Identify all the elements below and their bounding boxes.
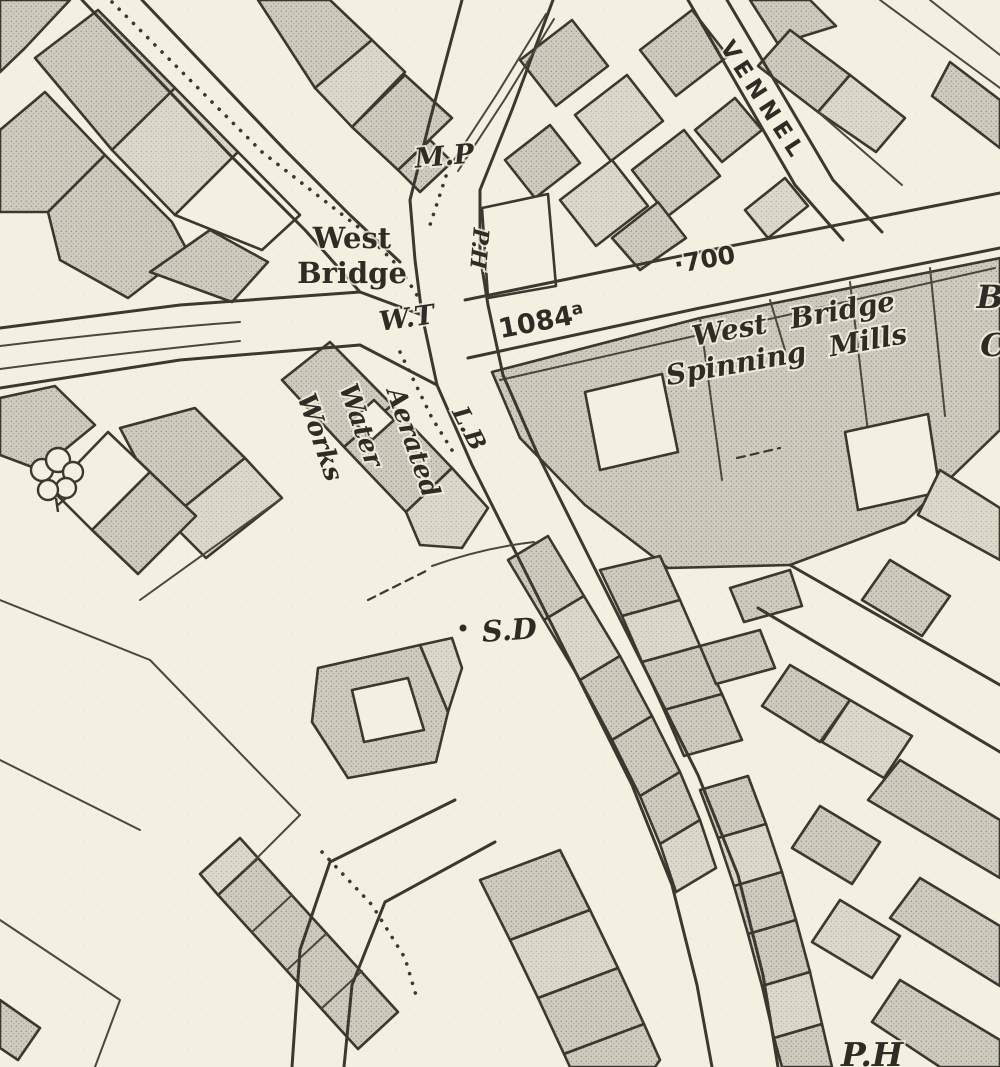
sd-point-dot — [460, 625, 467, 632]
map-viewport[interactable]: M.P West Bridge W.T P.H 1084a ·700 West … — [0, 0, 1000, 1067]
label-mile-post: M.P — [412, 138, 476, 174]
label-public-house: P.H — [464, 226, 494, 272]
mills-courtyard — [845, 414, 940, 510]
label-sundial: S.D — [481, 611, 538, 649]
label-edge-right-line2: C — [980, 326, 1000, 364]
mills-courtyard — [585, 374, 678, 470]
label-edge-bottom-ph: P.H — [840, 1035, 905, 1067]
historic-town-map: M.P West Bridge W.T P.H 1084a ·700 West … — [0, 0, 1000, 1067]
label-west-bridge-line2: Bridge — [297, 256, 407, 290]
label-west-bridge-line1: West — [312, 221, 392, 255]
label-edge-right-line1: B — [975, 278, 1000, 316]
